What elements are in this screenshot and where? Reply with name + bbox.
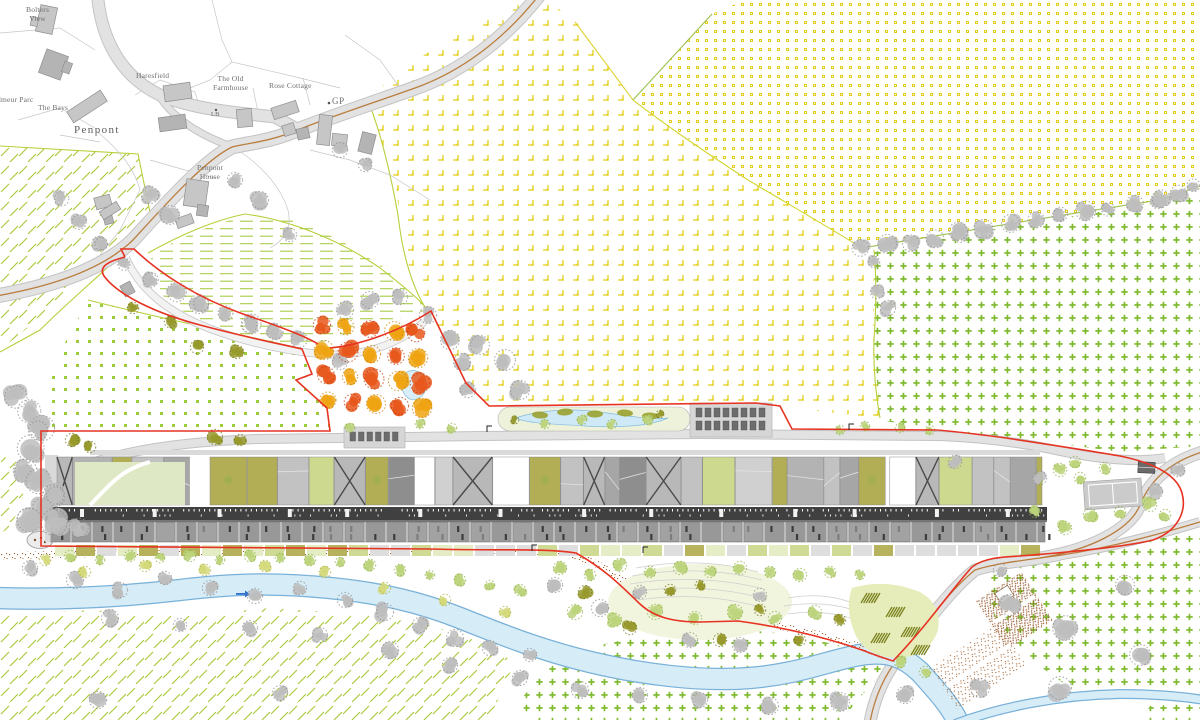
spine-window [698,509,699,512]
parked-car [750,421,756,430]
spine-opening [582,509,586,517]
village-building [196,204,208,216]
spine-window [747,515,748,517]
spine-window [851,515,852,517]
label-text: The Bays [38,103,68,112]
cottage-garden [811,545,830,556]
spine-window [162,509,163,512]
label-parc: dmeur Parc [0,95,33,104]
building-module [840,457,858,505]
tree [412,398,432,418]
tree [1159,509,1171,521]
spine-opening [345,509,349,517]
spine-window [164,515,165,517]
parked-car [723,421,729,430]
tree [141,185,160,204]
spine-window [807,509,808,512]
cottage-garden [853,545,872,556]
spine-window [365,509,366,512]
tree [275,553,285,563]
site-plan-map [0,0,1200,720]
spine-window [667,509,668,512]
spine-window [201,515,202,517]
tree [360,321,379,338]
spine-window [766,509,767,512]
spine-window [658,515,659,517]
spine-window [984,509,985,512]
building-module [787,457,823,505]
cottage-garden [937,545,956,556]
terrace-door [101,526,103,532]
spine-window [142,509,143,512]
terrace-unit [745,523,762,541]
spine-window [402,509,403,512]
spine-window [922,509,923,512]
spine-window [292,509,293,512]
spine-window [511,509,512,512]
spine-window [357,515,358,517]
spine-window [554,515,555,517]
terrace-door [313,526,315,532]
terrace-door [559,526,561,532]
tree [118,257,130,270]
label-text: Farmhouse [213,83,248,92]
spine-window [760,509,761,512]
spine-window [469,509,470,512]
terrace-unit [199,523,216,541]
cottage-garden [328,545,347,556]
spine-window [414,515,415,517]
tennis-court [1083,478,1143,510]
spine-window [95,509,96,512]
spine-window [838,509,839,512]
spine-window [222,515,223,517]
cottage-garden [727,545,746,556]
spine-window [454,509,455,512]
spine-window [994,509,995,512]
spine-window [844,509,845,512]
tree [1033,471,1047,485]
cottage-garden [370,545,389,556]
terrace-door [542,526,544,532]
courtyard-tree [373,476,381,484]
spine-window [188,509,189,512]
spine-window [591,515,592,517]
tree [385,322,405,341]
spine-window [599,509,600,512]
terrace-unit [325,523,342,541]
cottage-garden [433,545,452,556]
spine-window [204,509,205,512]
courtyard-tree [224,476,232,484]
parked-car [714,408,720,417]
tree [1074,472,1085,484]
spine-window [331,515,332,517]
cottage-garden [685,545,704,556]
spine-window [417,509,418,512]
spine-window [776,509,777,512]
spine-window [266,509,267,512]
terrace-unit [850,523,867,541]
tree [405,323,424,342]
tree [415,419,425,429]
spine-window [664,515,665,517]
spine-window [261,509,262,512]
spine-window [1012,515,1013,517]
terrace-window [505,534,507,540]
spine-window [274,515,275,517]
spine-window [412,509,413,512]
terrace-door [229,526,231,532]
spine-window [989,509,990,512]
building-spine [45,507,1047,520]
spine-window [209,509,210,512]
parked-car [741,408,747,417]
spine-window [828,509,829,512]
parked-car [732,408,738,417]
village-building [158,114,187,132]
cottage-garden [580,545,599,556]
cottage-garden [454,545,473,556]
spine-window [532,509,533,512]
spine-window [714,509,715,512]
terrace-window [883,534,885,540]
village-building [163,82,192,102]
spine-opening [935,509,939,517]
terrace-door [1042,526,1044,532]
parked-car [393,432,399,441]
cottage-garden [769,545,788,556]
terrace-window [608,534,610,540]
terrace-unit [619,523,636,541]
building-module [620,457,646,505]
spine-window [300,515,301,517]
spine-window [339,509,340,512]
parked-car [714,421,720,430]
terrace-unit [724,523,741,541]
spine-opening [649,509,653,517]
spine-window [1041,509,1042,512]
spine-window [700,515,701,517]
spine-window [350,509,351,512]
building-module [703,457,735,505]
spine-window [771,509,772,512]
spine-window [542,509,543,512]
terrace-window [393,534,395,540]
spine-window [480,509,481,512]
spine-window [870,509,871,512]
spine-window [303,509,304,512]
village-building [120,281,135,297]
spine-window [755,509,756,512]
spine-window [376,509,377,512]
terrace-door [685,526,687,532]
spine-window [1020,509,1021,512]
spine-opening [418,509,422,517]
tree [358,157,372,171]
spine-window [490,509,491,512]
cottage-garden [706,545,725,556]
tree [547,577,562,592]
parked-car [759,408,765,417]
spine-window [1015,509,1016,512]
spine-window [225,509,226,512]
spine-window [256,509,257,512]
spine-window [880,509,881,512]
parked-car [367,432,373,441]
spine-window [679,515,680,517]
label-bolters-view: Bolters View [26,5,49,23]
terrace-door [770,526,772,532]
building-module [735,457,772,505]
building-module [772,457,787,505]
spine-window [729,509,730,512]
spine-window [105,509,106,512]
spine-window [277,509,278,512]
terrace-door [457,526,459,532]
cottage-garden [979,545,998,556]
spine-window [788,515,789,517]
spine-window [1043,515,1044,517]
spine-window [809,515,810,517]
spine-window [126,509,127,512]
terrace-door [585,526,587,532]
label-penpont: Penpont [74,124,120,137]
spine-window [864,509,865,512]
label-text: LB [211,111,220,118]
parked-car [732,421,738,430]
terrace-window [546,534,548,540]
terrace-door [792,526,794,532]
spine-window [121,509,122,512]
tree [158,206,179,225]
spine-opening [719,509,723,517]
spine-window [580,515,581,517]
terrace-unit [976,523,993,541]
spine-window [942,509,943,512]
spine-window [230,509,231,512]
tree [1099,462,1110,475]
spine-window [474,509,475,512]
label-old-farmhouse: The Old Farmhouse [213,74,248,92]
building-module [561,457,583,505]
spine-window [734,509,735,512]
building-module [415,457,435,505]
spine-window [656,509,657,512]
parked-car [723,408,729,417]
spine-window [677,509,678,512]
tree [198,564,210,576]
spine-window [459,509,460,512]
spine-window [861,515,862,517]
gp-marker [328,102,331,105]
spine-opening [793,509,797,517]
tree [344,393,361,412]
spine-window [958,509,959,512]
label-text: dmeur Parc [0,95,33,104]
label-penpont-house: Penpont House [197,163,223,181]
terrace-window [288,534,290,540]
spine-opening [80,509,84,517]
village-building [296,127,310,140]
spine-window [682,509,683,512]
courtyard-tree [541,476,549,484]
parked-car [359,432,365,441]
tree [319,566,331,578]
spine-window [272,509,273,512]
spine-window [428,509,429,512]
spine-window [979,509,980,512]
label-text: GP [332,96,345,106]
terrace-unit [157,523,174,541]
parked-car [376,432,382,441]
tree [250,191,269,211]
tree [425,570,435,580]
spine-window [69,509,70,512]
tree [824,566,836,577]
tree [335,557,345,567]
terrace-door [1001,526,1003,532]
spine-window [521,509,522,512]
spine-window [310,515,311,517]
spine-window [334,509,335,512]
terrace-window [1025,534,1027,540]
spine-window [589,509,590,512]
spine-window [896,509,897,512]
terrace-window [796,534,798,540]
building-module [389,457,414,505]
tree [39,554,50,565]
terrace-window [187,534,189,540]
spine-window [360,509,361,512]
terrace-window [562,534,564,540]
tree [439,594,451,606]
label-lb: LB [211,111,220,119]
tree [553,561,567,574]
cottage-garden [391,545,410,556]
spine-window [110,509,111,512]
spine-window [214,509,215,512]
spine-window [448,509,449,512]
spine-window [336,515,337,517]
terrace-door [120,526,122,532]
tree [591,599,609,616]
terrace-unit [514,523,531,541]
cottage-garden [916,545,935,556]
cottage-garden [664,545,683,556]
spine-window [825,515,826,517]
tree [3,384,28,408]
spine-window [409,515,410,517]
spine-window [168,509,169,512]
spine-window [724,509,725,512]
village-building [67,90,108,123]
spine-window [927,509,928,512]
building-module [278,457,309,505]
spine-window [329,509,330,512]
spine-window [875,509,876,512]
spine-window [248,515,249,517]
terrace-window [925,534,927,540]
spine-window [482,515,483,517]
terrace-window [104,534,106,540]
parked-car [705,408,711,417]
terrace-unit [430,523,447,541]
tree [454,573,466,587]
tree [578,585,594,599]
spine-window [235,509,236,512]
spine-window [630,509,631,512]
cottage-garden [790,545,809,556]
tree [227,172,242,188]
spine-opening [288,509,292,517]
spine-window [466,515,467,517]
building-module [890,457,916,505]
label-text: Haresfield [136,71,169,80]
tree [344,423,354,433]
terrace-window [818,534,820,540]
spine-window [558,509,559,512]
spine-window [1000,509,1001,512]
building-module [824,457,840,505]
label-text: Penpont [74,124,120,136]
building-module [994,457,1010,505]
spine-window [646,509,647,512]
spine-window [159,515,160,517]
spine-window [318,509,319,512]
cottage-garden [895,545,914,556]
terrace-unit [661,523,678,541]
building-module [1011,457,1036,505]
spine-opening [498,509,502,517]
tree [764,566,776,577]
field-hatch-south [0,608,515,720]
spine-window [911,509,912,512]
label-rose-cottage: Rose Cottage [269,81,312,90]
tree [1057,520,1072,535]
spine-window [378,515,379,517]
tree [499,606,511,618]
tree [259,560,272,572]
tree [366,394,385,413]
spine-window [170,515,171,517]
label-gp: GP [332,96,345,107]
cottage-garden [622,545,641,556]
parked-car [696,421,702,430]
spine-window [703,509,704,512]
tree [363,559,376,571]
spine-window [908,515,909,517]
terrace-unit [409,523,426,541]
spine-window [251,509,252,512]
parked-car [350,432,356,441]
terrace-unit [346,523,363,541]
spine-window [620,509,621,512]
tree [408,348,427,367]
tree [158,571,173,585]
spine-window [578,509,579,512]
spine-window [1005,509,1006,512]
tree [511,670,529,686]
terrace-door [287,526,289,532]
spine-window [953,509,954,512]
terrace-unit [892,523,909,541]
spine-window [173,509,174,512]
spine-window [708,509,709,512]
parked-car [696,408,702,417]
spine-window [974,509,975,512]
label-the-bays: The Bays [38,103,68,112]
